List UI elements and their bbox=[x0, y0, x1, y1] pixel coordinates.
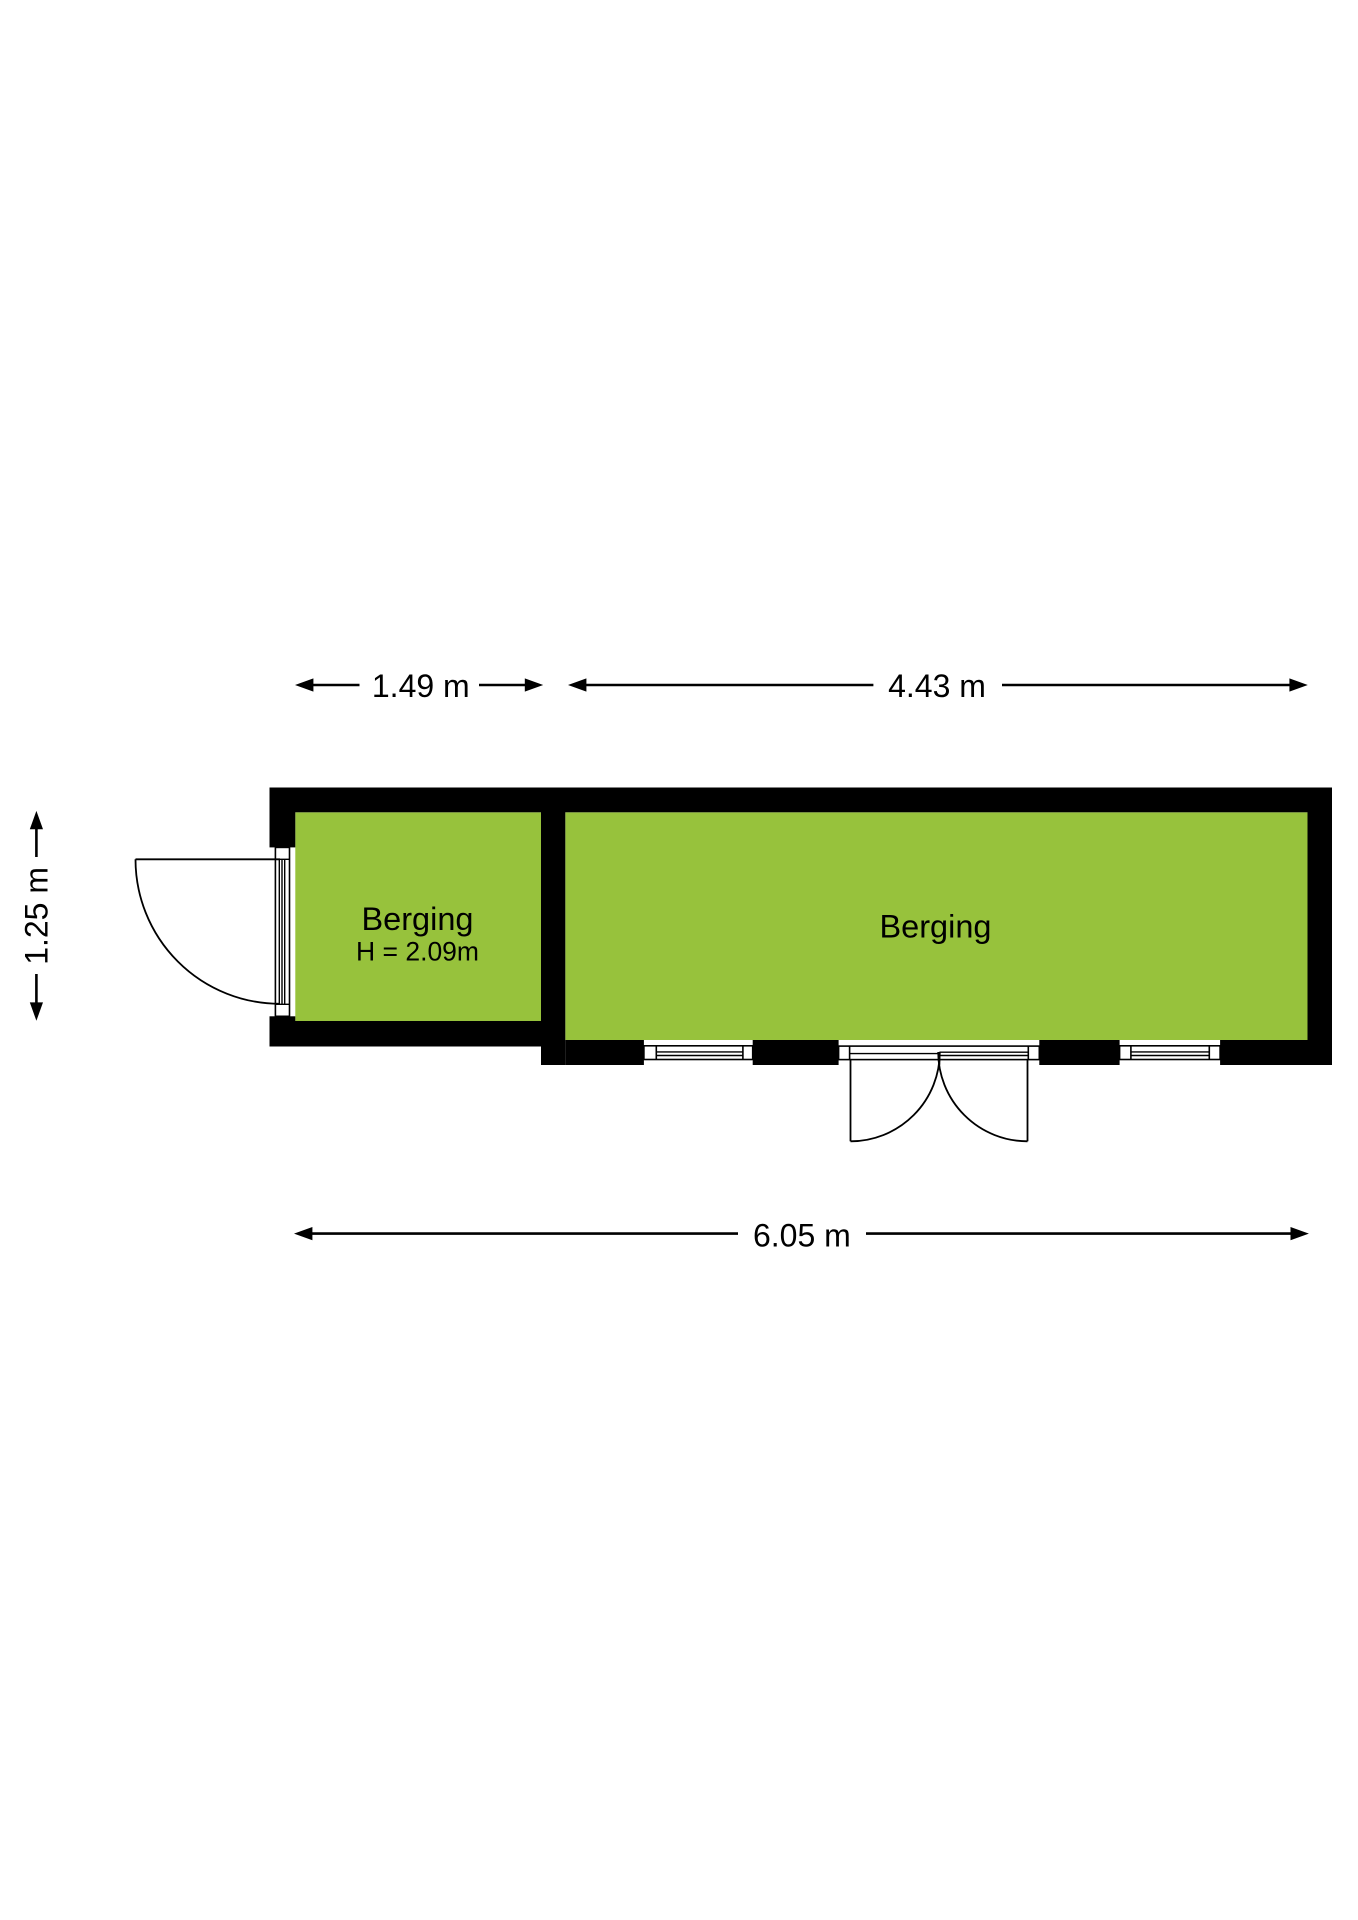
svg-text:H = 2.09m: H = 2.09m bbox=[356, 937, 479, 967]
svg-text:6.05 m: 6.05 m bbox=[753, 1218, 851, 1254]
svg-text:Berging: Berging bbox=[879, 909, 991, 945]
svg-text:4.43 m: 4.43 m bbox=[888, 668, 986, 704]
svg-text:1.25 m: 1.25 m bbox=[19, 867, 55, 965]
svg-text:Berging: Berging bbox=[361, 901, 473, 937]
svg-text:1.49 m: 1.49 m bbox=[372, 668, 470, 704]
